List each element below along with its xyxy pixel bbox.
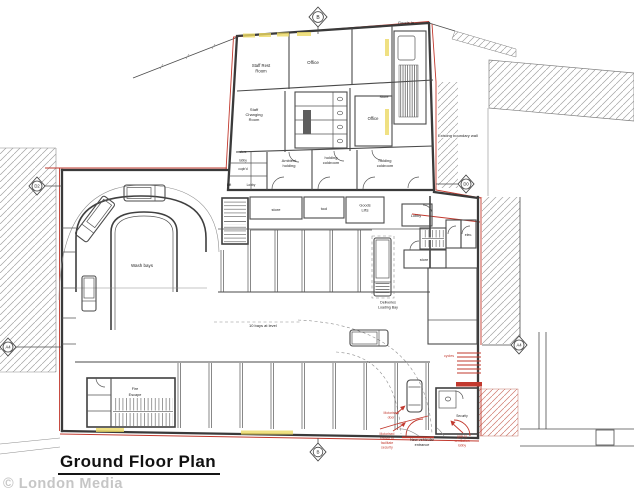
- label-store-left: store: [239, 150, 246, 154]
- svg-text:Escape: Escape: [129, 393, 142, 397]
- label-wash-bays: Wash bays: [131, 263, 154, 268]
- label-deliveries: Deliveries: [380, 301, 396, 305]
- label-lobby-right: Lobby: [411, 214, 421, 218]
- svg-text:lobby: lobby: [458, 444, 466, 448]
- label-elec: elec.: [465, 233, 473, 237]
- right-rooms: [402, 196, 477, 344]
- svg-text:holding: holding: [283, 163, 296, 168]
- svg-text:ventilation: ventilation: [454, 439, 469, 443]
- label-cupboard: cupb'd: [238, 167, 248, 171]
- car-parking-bay: [407, 380, 422, 412]
- label-lift: Lift: [227, 183, 231, 187]
- svg-text:Room: Room: [249, 117, 260, 122]
- svg-text:facilitate: facilitate: [381, 441, 394, 445]
- label-office-top: Office: [307, 60, 319, 65]
- hall-walls: [62, 170, 478, 438]
- floor-plan-drawing: B B D2 D0 A4 A4 Staff Rest Room Office S…: [0, 0, 634, 497]
- label-store-top: Store: [379, 95, 388, 99]
- duct: [303, 110, 311, 134]
- note-new-entrance: New vehicular: [410, 438, 435, 442]
- note-gate-lobby: gate to: [457, 435, 467, 439]
- parking-top-row: [218, 230, 430, 298]
- label-security: Security: [456, 414, 468, 418]
- label-boundary-wall: Existing boundary wall: [438, 133, 478, 138]
- page-title: Ground Floor Plan: [58, 452, 220, 475]
- svg-text:screen to: screen to: [380, 437, 394, 441]
- label-goods-lifts: Goods: [359, 204, 370, 208]
- label-office-mid: Office: [368, 116, 380, 121]
- note-motorised-door: Motorised: [384, 411, 399, 415]
- grid-letter: D0: [463, 182, 469, 187]
- truck-loading-bay: [374, 238, 391, 296]
- security-room: [436, 382, 482, 434]
- svg-text:Lifts: Lifts: [362, 209, 369, 213]
- svg-text:coldroom: coldroom: [377, 163, 394, 168]
- svg-text:security: security: [381, 446, 393, 450]
- svg-text:Room: Room: [255, 69, 267, 74]
- grid-letter: A4: [516, 343, 522, 348]
- watermark: © London Media: [3, 476, 123, 492]
- floor-plan-page: B B D2 D0 A4 A4 Staff Rest Room Office S…: [0, 0, 634, 497]
- grid-letter: D2: [34, 184, 40, 189]
- truck-aisle: [350, 330, 388, 346]
- parking-bottom-row: [178, 363, 429, 430]
- truck-wash-top: [124, 185, 165, 201]
- label-staff-rest-room: Staff Rest: [252, 63, 271, 68]
- label-goods-in: Goods In: [398, 20, 414, 25]
- truck-wash-bottom: [82, 276, 96, 311]
- note-motorised-screen: Motorised: [380, 432, 395, 436]
- svg-text:coldroom: coldroom: [323, 160, 340, 165]
- label-store-row: store: [272, 207, 282, 212]
- middle-rooms: [218, 197, 430, 244]
- grid-letter: A4: [5, 345, 11, 350]
- label-lobby-mid: Lobby: [247, 183, 256, 187]
- svg-text:Loading Bay: Loading Bay: [378, 306, 398, 310]
- label-fire-escape: Fire: [132, 387, 139, 391]
- label-cycles: cycles: [444, 354, 454, 358]
- fire-escape: [87, 378, 175, 427]
- label-tool: tool: [321, 206, 328, 211]
- label-lobby-left: lobby: [239, 159, 247, 163]
- svg-text:entrance: entrance: [415, 443, 430, 447]
- label-aisle-note: 10 bays at level: [249, 323, 277, 328]
- svg-text:door: door: [388, 416, 396, 420]
- label-store-right: store: [420, 258, 428, 262]
- grid-marker-bottom: B: [310, 438, 326, 461]
- red-highlight: [456, 382, 482, 387]
- grid-letter: B: [316, 450, 319, 455]
